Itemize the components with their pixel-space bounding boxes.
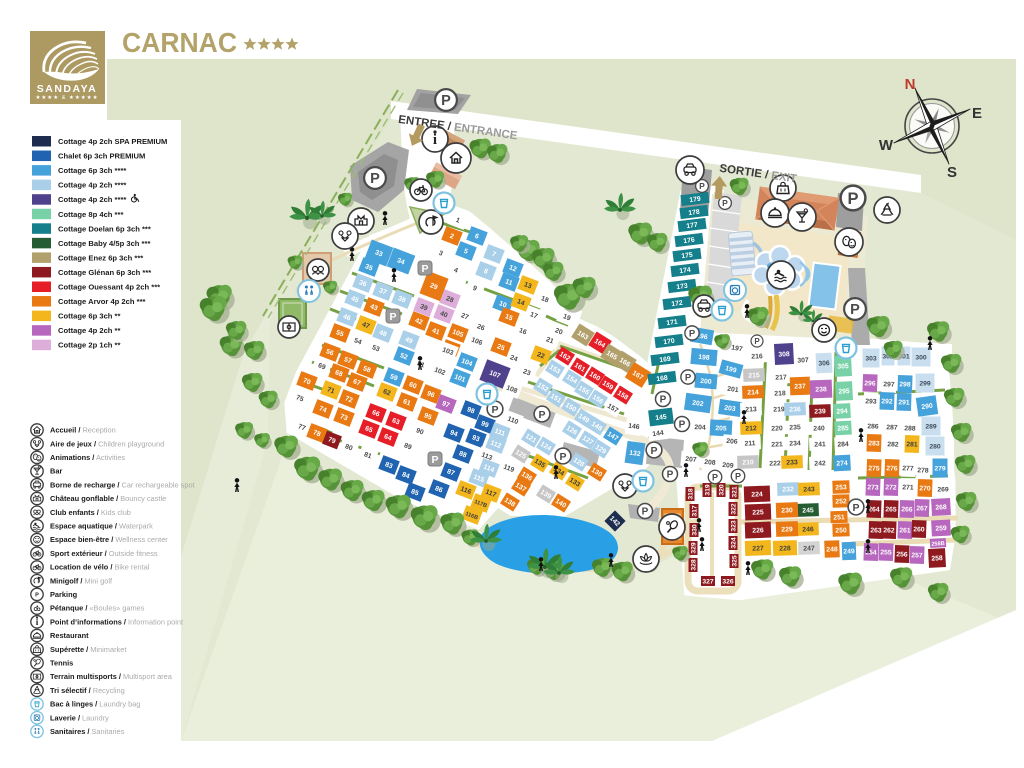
svg-text:Cottage Doelan 6p 3ch ***: Cottage Doelan 6p 3ch *** [58,224,151,233]
svg-text:Bac à linges / Laundry bag: Bac à linges / Laundry bag [50,700,140,709]
svg-text:211: 211 [744,440,755,447]
svg-text:275: 275 [868,465,880,472]
svg-text:277: 277 [902,465,914,472]
svg-text:Cottage Baby 4/5p 3ch ***: Cottage Baby 4/5p 3ch *** [58,239,150,248]
svg-text:279: 279 [934,465,946,472]
svg-text:236: 236 [789,406,801,413]
svg-text:266: 266 [901,506,913,513]
svg-text:293: 293 [865,398,877,405]
svg-text:228: 228 [779,545,791,552]
svg-text:i: i [433,132,437,148]
svg-text:Cottage Glénan 6p 3ch ***: Cottage Glénan 6p 3ch *** [58,268,151,277]
svg-text:280: 280 [929,443,941,450]
svg-text:295: 295 [838,388,850,396]
svg-text:289: 289 [925,423,937,430]
svg-text:320: 320 [718,484,725,496]
svg-text:284: 284 [837,441,849,449]
svg-text:272: 272 [885,484,897,491]
svg-text:262: 262 [883,527,895,534]
svg-text:288: 288 [904,425,916,432]
svg-text:269: 269 [937,486,949,493]
svg-text:Château gonflable / Bouncy cas: Château gonflable / Bouncy castle [50,494,166,503]
svg-text:319: 319 [704,484,711,496]
svg-text:232: 232 [782,486,794,493]
svg-text:323: 323 [730,520,737,532]
svg-text:281: 281 [906,441,918,448]
svg-text:207: 207 [685,456,697,464]
svg-text:204: 204 [694,424,706,432]
svg-text:P: P [35,593,39,599]
svg-text:S: S [947,164,957,181]
svg-text:256: 256 [896,551,908,558]
svg-text:Location de vélo / Bike rental: Location de vélo / Bike rental [50,563,150,572]
svg-text:Cottage Ouessant 4p 2ch ***: Cottage Ouessant 4p 2ch *** [58,283,160,292]
svg-text:278: 278 [917,467,929,474]
svg-text:224: 224 [751,491,763,498]
svg-text:Cottage 4p 2ch ****: Cottage 4p 2ch **** [58,181,126,190]
svg-text:253: 253 [835,484,847,491]
svg-text:317: 317 [691,505,698,517]
svg-text:Bar: Bar [50,467,62,476]
svg-text:209: 209 [722,462,734,470]
svg-text:326: 326 [722,578,734,585]
svg-text:238: 238 [815,386,827,393]
svg-text:216: 216 [751,353,763,360]
svg-text:218: 218 [774,390,786,397]
svg-text:258: 258 [931,555,943,563]
svg-text:★★★★ & ★★★★★: ★★★★ & ★★★★★ [35,94,98,101]
svg-text:170: 170 [663,338,675,346]
svg-text:303: 303 [865,355,877,362]
svg-text:212: 212 [745,425,757,432]
svg-text:215: 215 [748,372,760,379]
svg-text:Espace aquatique / Waterpark: Espace aquatique / Waterpark [50,522,153,531]
svg-text:Club enfants / Kids club: Club enfants / Kids club [50,508,131,517]
svg-text:245: 245 [802,507,814,514]
svg-text:306: 306 [818,360,830,368]
svg-text:322: 322 [730,503,737,515]
svg-text:Borne de recharge / Car rechar: Borne de recharge / Car rechargeable spo… [50,480,195,489]
svg-text:213: 213 [745,406,757,413]
svg-text:285: 285 [837,425,849,433]
svg-text:234: 234 [789,440,801,447]
svg-text:CARNAC: CARNAC [122,27,237,58]
svg-text:Tennis: Tennis [50,659,73,668]
svg-text:239: 239 [814,408,826,415]
svg-text:221: 221 [771,441,783,448]
svg-text:298: 298 [899,381,911,388]
svg-text:Cottage Arvor 4p 2ch ***: Cottage Arvor 4p 2ch *** [58,297,146,306]
svg-text:282: 282 [887,441,899,448]
svg-text:i: i [36,618,39,628]
svg-text:294: 294 [836,408,848,416]
svg-text:229: 229 [781,526,793,533]
svg-text:219: 219 [773,406,785,413]
svg-text:270: 270 [919,485,931,492]
svg-text:Cottage 6p 3ch **: Cottage 6p 3ch ** [58,312,120,321]
svg-text:250: 250 [835,527,847,534]
svg-text:286: 286 [867,423,879,430]
svg-text:242: 242 [814,460,826,467]
svg-text:226: 226 [752,527,764,534]
svg-text:N: N [905,76,916,93]
svg-text:267: 267 [916,505,928,512]
svg-text:175: 175 [681,252,693,260]
svg-text:240: 240 [813,425,825,432]
svg-text:255: 255 [880,549,892,556]
svg-text:291: 291 [898,399,910,406]
svg-text:Tri sélectif / Recycling: Tri sélectif / Recycling [50,686,125,695]
svg-text:246: 246 [802,526,814,533]
svg-text:243: 243 [803,486,815,493]
svg-text:222: 222 [769,460,781,467]
svg-text:214: 214 [747,389,759,396]
svg-text:261: 261 [899,527,911,534]
svg-text:144: 144 [652,430,664,438]
svg-text:296: 296 [864,380,876,387]
svg-text:299: 299 [919,380,931,387]
svg-text:300: 300 [915,354,927,361]
svg-text:227: 227 [752,545,764,552]
svg-text:205: 205 [715,425,727,433]
svg-text:Cottage 4p 2ch ****: Cottage 4p 2ch **** [58,195,126,204]
svg-text:217: 217 [775,374,787,381]
svg-text:Restaurant: Restaurant [50,631,89,640]
svg-text:274: 274 [836,460,848,468]
svg-text:248: 248 [826,546,838,553]
svg-text:Cottage 2p 1ch **: Cottage 2p 1ch ** [58,341,120,350]
svg-text:225: 225 [752,509,764,516]
svg-text:292: 292 [881,398,893,405]
svg-text:Aire de jeux / Children playgr: Aire de jeux / Children playground [50,439,164,448]
svg-text:168: 168 [656,375,668,383]
svg-text:308: 308 [778,351,790,359]
svg-text:257: 257 [911,552,923,559]
svg-text:287: 287 [886,424,898,431]
svg-text:177: 177 [686,222,698,230]
svg-text:329: 329 [690,542,697,554]
svg-text:Accueil / Reception: Accueil / Reception [50,426,116,435]
svg-text:173: 173 [676,283,688,291]
svg-text:Supérette / Minimarket: Supérette / Minimarket [50,645,126,654]
svg-text:174: 174 [679,267,691,275]
svg-text:Parking: Parking [50,590,78,599]
svg-text:169: 169 [659,356,671,364]
svg-text:268: 268 [935,504,947,512]
svg-text:328: 328 [690,559,697,571]
svg-text:Sport extérieur / Outside fitn: Sport extérieur / Outside fitness [50,549,158,558]
svg-text:Terrain multisports / Multispo: Terrain multisports / Multisport area [50,672,173,681]
svg-text:Pétanque / «Boules» games: Pétanque / «Boules» games [50,604,145,613]
svg-text:325: 325 [731,555,738,567]
svg-text:179: 179 [689,196,701,204]
svg-text:Cottage 4p 2ch SPA PREMIUM: Cottage 4p 2ch SPA PREMIUM [58,137,167,146]
svg-text:200: 200 [700,378,712,386]
svg-text:307: 307 [797,357,809,365]
svg-text:265: 265 [885,506,897,513]
svg-text:145: 145 [655,414,667,422]
svg-text:249: 249 [843,548,855,555]
svg-text:Laverie / Laundry: Laverie / Laundry [50,713,109,722]
svg-text:206: 206 [726,438,738,446]
svg-text:259: 259 [935,525,947,533]
svg-text:198: 198 [698,354,710,362]
svg-text:297: 297 [883,381,895,388]
svg-text:230: 230 [781,507,793,514]
svg-text:271: 271 [902,484,914,491]
svg-text:SANDAYA: SANDAYA [37,83,98,95]
svg-text:276: 276 [886,465,898,472]
svg-text:Minigolf / Mini golf: Minigolf / Mini golf [50,576,113,585]
svg-text:324: 324 [730,537,737,549]
svg-text:241: 241 [814,441,826,448]
svg-text:247: 247 [803,545,815,552]
svg-text:Cottage 8p 4ch ***: Cottage 8p 4ch *** [58,210,123,219]
svg-text:Chalet 6p 3ch PREMIUM: Chalet 6p 3ch PREMIUM [58,152,145,161]
svg-text:171: 171 [666,319,678,327]
svg-text:176: 176 [683,237,695,245]
svg-text:210: 210 [742,459,754,466]
svg-text:W: W [879,137,894,154]
svg-text:235: 235 [789,424,801,431]
svg-text:Cottage 6p 3ch ****: Cottage 6p 3ch **** [58,166,126,175]
svg-text:178: 178 [688,209,700,217]
svg-text:263: 263 [870,527,882,534]
svg-text:220: 220 [771,425,783,432]
svg-text:E: E [972,105,982,122]
svg-text:Cottage Enez 6p 3ch ***: Cottage Enez 6p 3ch *** [58,253,143,262]
svg-text:Cottage 4p 2ch **: Cottage 4p 2ch ** [58,326,120,335]
svg-text:260: 260 [913,526,925,533]
svg-text:283: 283 [868,440,880,447]
svg-text:327: 327 [702,578,714,585]
svg-text:Point d’informations / Informa: Point d’informations / Information point [50,617,183,626]
svg-text:251: 251 [833,514,845,521]
svg-text:Sanitaires / Sanitaries: Sanitaires / Sanitaries [50,727,125,736]
svg-text:172: 172 [671,300,683,308]
svg-text:208: 208 [704,459,716,467]
svg-text:258B: 258B [931,541,945,548]
svg-text:233: 233 [786,459,798,466]
svg-text:Animations / Activities: Animations / Activities [50,453,125,462]
svg-text:318: 318 [687,488,694,500]
svg-text:305: 305 [837,363,849,371]
svg-text:273: 273 [867,484,879,491]
svg-text:Espace bien-être / Wellness ce: Espace bien-être / Wellness center [50,535,168,544]
svg-text:321: 321 [731,486,738,498]
svg-text:237: 237 [794,383,806,390]
svg-text:252: 252 [835,498,847,505]
